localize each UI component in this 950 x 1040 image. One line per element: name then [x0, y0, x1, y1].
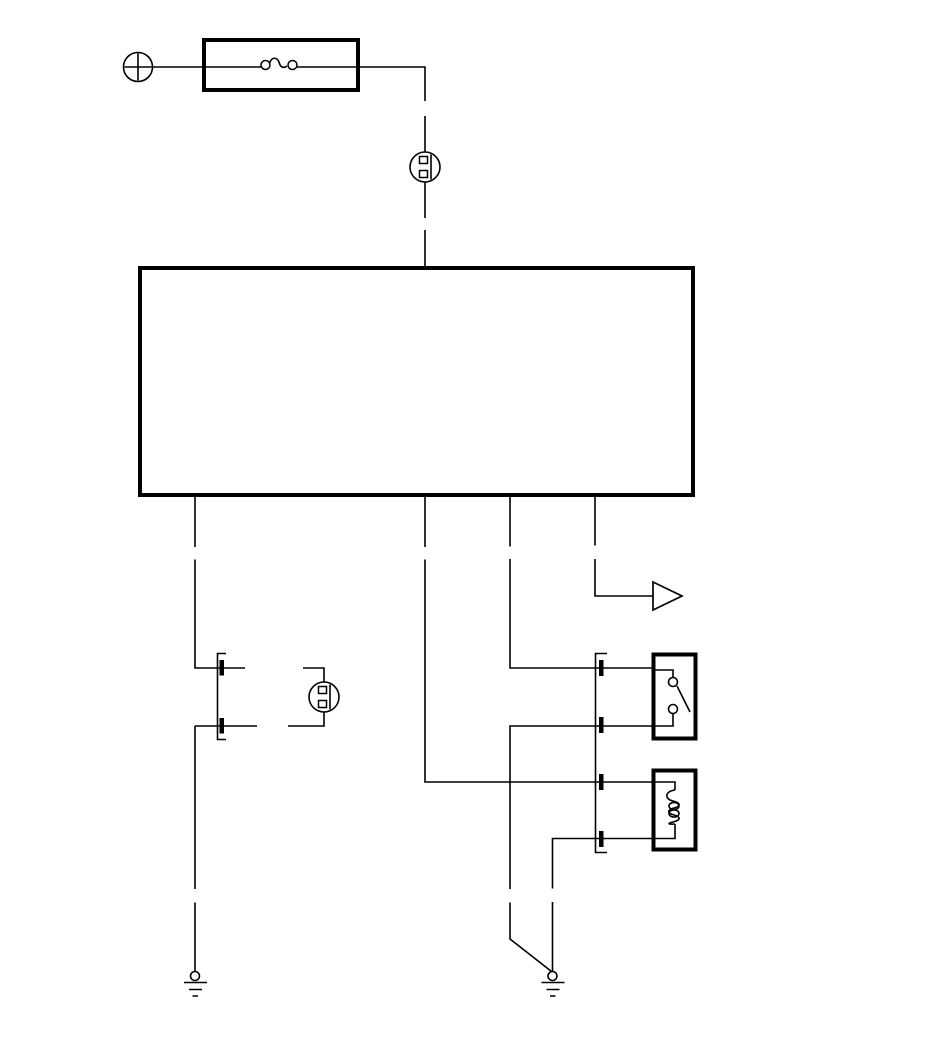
- wire-control-unit-to-coil: [425, 497, 652, 782]
- wire-fuse-to-connector: [358, 67, 425, 153]
- solenoid-coil-box: [653, 771, 696, 850]
- multi-pin-connector: [596, 654, 608, 853]
- wire-control-unit-to-switch: [195, 497, 245, 668]
- ground-left-icon: [184, 972, 207, 997]
- inline-connector-top-icon: [410, 152, 440, 182]
- wire-relay-to-ground: [510, 726, 652, 972]
- wiring-diagram: [0, 0, 950, 1040]
- signal-arrow-icon: [653, 582, 682, 610]
- relay-contact-icon: [653, 670, 690, 726]
- ground-right-icon: [542, 972, 565, 997]
- wire-control-unit-to-relay: [510, 497, 652, 668]
- fuse-box: [204, 40, 358, 90]
- power-source-icon: [124, 53, 153, 82]
- wire-control-unit-to-arrow: [595, 497, 653, 596]
- coil-icon: [653, 782, 679, 839]
- control-unit-box: [140, 268, 693, 495]
- fuse-element-icon: [206, 58, 356, 69]
- switch-inline-connector-icon: [288, 668, 339, 726]
- switch-connector: [195, 654, 257, 740]
- relay-contact-box: [653, 655, 696, 739]
- wire-coil-to-ground: [553, 839, 652, 972]
